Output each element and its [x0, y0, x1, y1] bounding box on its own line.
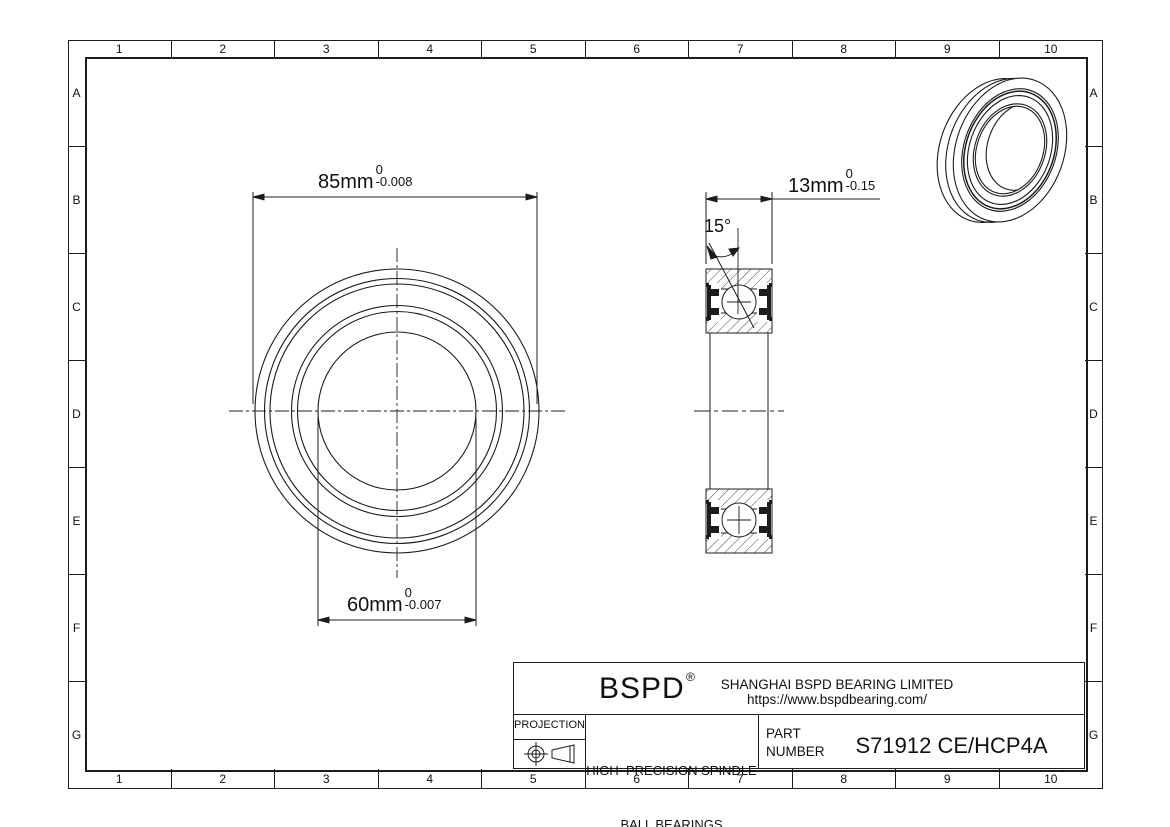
bore-tolerance: 0 -0.007	[405, 587, 442, 611]
bore-tol-lower: -0.007	[405, 599, 442, 611]
arrowhead	[318, 617, 329, 623]
company-url: https://www.bspdbearing.com/	[692, 692, 982, 707]
section-view	[694, 228, 784, 553]
title-block-divider	[514, 714, 1084, 715]
part-number-label: PART NUMBER	[766, 725, 825, 761]
arrowhead	[761, 196, 772, 202]
seal-left-bottom	[706, 500, 721, 539]
company-info: SHANGHAI BSPD BEARING LIMITED https://ww…	[692, 677, 982, 707]
front-view	[229, 248, 566, 578]
width-dimension-label: 13mm 0 -0.15	[788, 176, 875, 196]
part-label-line2: NUMBER	[766, 743, 825, 761]
iso-view	[918, 57, 1086, 244]
bore-dimension-label: 60mm 0 -0.007	[347, 595, 441, 615]
drawing-sheet: 12345678910 12345678910 ABCDEFG ABCDEFG	[0, 0, 1170, 827]
iso-outer-face	[934, 62, 1086, 238]
seal-left-top	[706, 283, 721, 322]
part-number-value: S71912 CE/HCP4A	[829, 733, 1074, 759]
arrowhead	[706, 196, 717, 202]
part-label-line1: PART	[766, 725, 825, 743]
arrowhead	[253, 194, 264, 200]
width-tolerance: 0 -0.15	[846, 168, 876, 192]
od-value: 85mm	[318, 172, 374, 192]
dim-85mm-lines	[253, 192, 537, 404]
section-bottom-block	[706, 489, 772, 553]
title-block-divider	[758, 714, 759, 768]
product-line1: HIGH PRECISION SPINDLE	[585, 762, 758, 780]
first-angle-projection-icon	[516, 740, 584, 768]
projection-label: PROJECTION	[514, 719, 585, 731]
width-value: 13mm	[788, 176, 844, 196]
company-logo: BSPD	[599, 674, 685, 704]
contact-angle-label: 15°	[704, 216, 731, 237]
company-name: SHANGHAI BSPD BEARING LIMITED	[692, 677, 982, 692]
od-tolerance: 0 -0.008	[376, 164, 413, 188]
width-tol-lower: -0.15	[846, 180, 876, 192]
section-top-block	[706, 228, 772, 333]
od-dimension-label: 85mm 0 -0.008	[318, 172, 412, 192]
od-tol-lower: -0.008	[376, 176, 413, 188]
seal-right-bottom	[757, 500, 772, 539]
title-block: BSPD ® SHANGHAI BSPD BEARING LIMITED htt…	[513, 662, 1085, 769]
arrowhead	[526, 194, 537, 200]
product-line2: BALL BEARINGS	[585, 816, 758, 827]
seal-right-top	[757, 283, 772, 322]
arrowhead	[465, 617, 476, 623]
bore-value: 60mm	[347, 595, 403, 615]
product-description: HIGH PRECISION SPINDLE BALL BEARINGS	[585, 726, 758, 827]
